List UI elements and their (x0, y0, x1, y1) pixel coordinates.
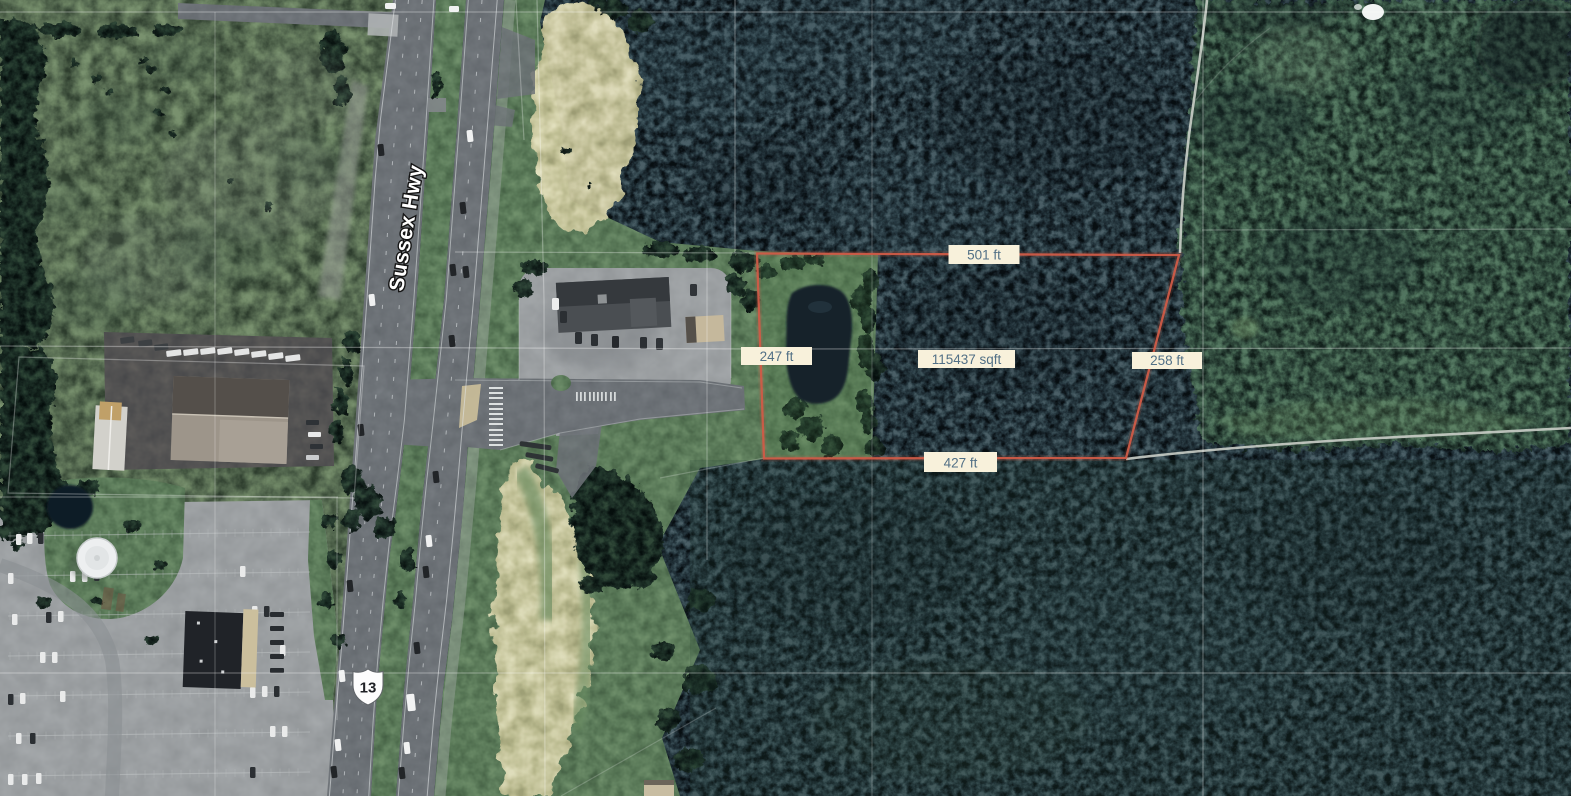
svg-text:427 ft: 427 ft (944, 455, 978, 470)
svg-text:115437 sqft: 115437 sqft (932, 352, 1002, 367)
svg-text:247 ft: 247 ft (760, 349, 794, 364)
svg-text:258 ft: 258 ft (1150, 353, 1184, 368)
svg-text:501 ft: 501 ft (967, 248, 1001, 263)
svg-text:13: 13 (360, 680, 377, 697)
